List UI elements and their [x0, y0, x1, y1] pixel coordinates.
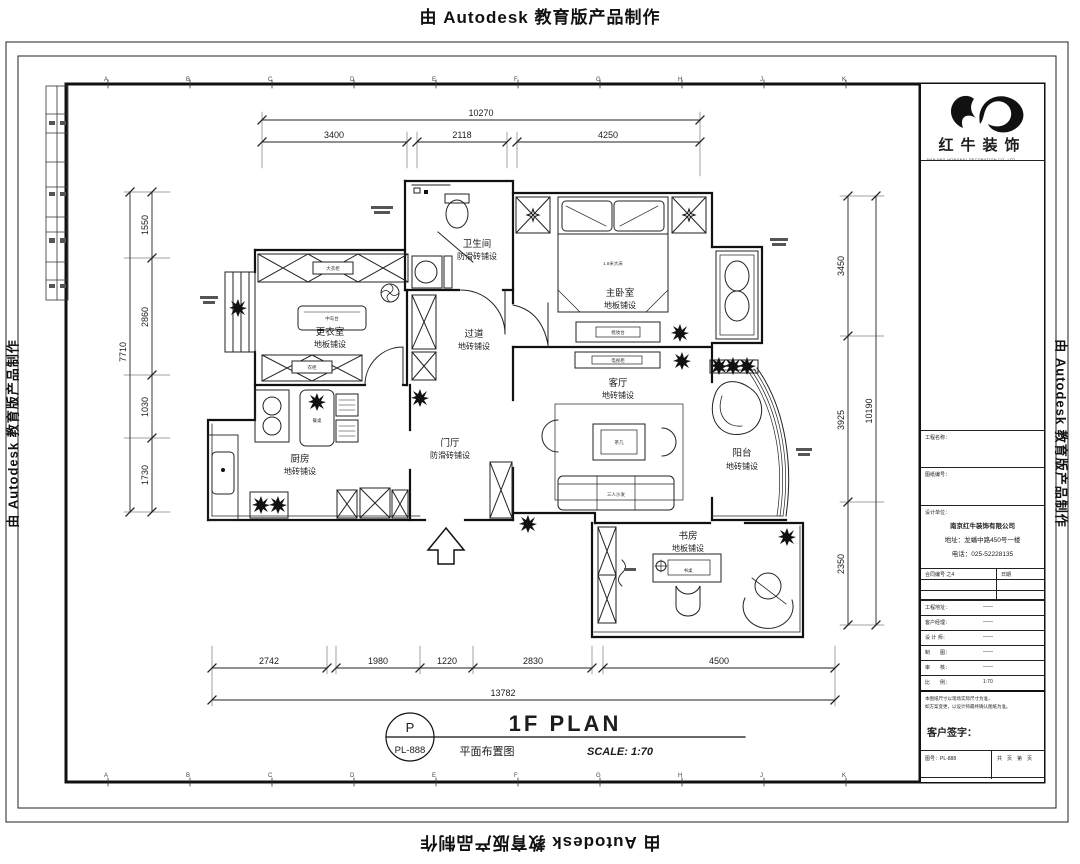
svg-text:3450: 3450	[836, 256, 846, 276]
company-name: 南京红牛装饰有限公司	[921, 520, 1044, 530]
room-labels: 更衣室 地板铺设 卫生间 防滑砖铺设 主卧室 地板铺设 过道 地砖铺设 客厅 地…	[284, 238, 758, 553]
floorplan-svg: AB CD EF GH JK AB CD EF GH JK	[0, 0, 1080, 864]
furniture	[208, 188, 793, 628]
sheet-borders	[6, 42, 1068, 822]
svg-text:大衣柜: 大衣柜	[326, 265, 340, 272]
svg-text:E: E	[432, 773, 436, 779]
title-cn: 平面布置图	[460, 745, 515, 758]
svg-text:中岛台: 中岛台	[325, 315, 339, 322]
svg-text:地板铺设: 地板铺设	[314, 339, 346, 349]
svg-text:D: D	[350, 773, 355, 779]
svg-text:地砖铺设: 地砖铺设	[284, 466, 316, 476]
svg-text:K: K	[842, 773, 846, 779]
room-label-dressing: 更衣室	[316, 326, 345, 338]
title-scale: SCALE: 1:70	[587, 746, 654, 758]
tb-date-label: 日期	[1001, 571, 1011, 578]
tb-section3-label: 设计单位：	[925, 509, 950, 516]
svg-text:1980: 1980	[368, 656, 388, 666]
tb-note-2: 如方案变更，以设计师最终确认图纸为准。	[925, 704, 1011, 710]
svg-text:J: J	[760, 77, 763, 83]
svg-text:B: B	[186, 77, 190, 83]
svg-text:4250: 4250	[598, 130, 618, 140]
tb-footer-right: 共 页 第 页	[997, 755, 1032, 762]
brand-name: 红牛装饰	[921, 134, 1044, 155]
svg-text:地砖铺设: 地砖铺设	[726, 461, 758, 471]
svg-text:三人沙发: 三人沙发	[607, 491, 625, 498]
svg-text:D: D	[350, 77, 355, 83]
drawing-title: P PL-888 1F PLAN 平面布置图 SCALE: 1:70	[386, 711, 745, 761]
svg-text:2118: 2118	[452, 130, 471, 140]
svg-text:1730: 1730	[140, 465, 150, 485]
svg-text:书桌: 书桌	[684, 567, 693, 574]
svg-text:衣柜: 衣柜	[308, 364, 317, 371]
room-label-balcony: 阳台	[732, 447, 751, 459]
svg-text:3925: 3925	[836, 410, 846, 430]
svg-text:G: G	[596, 773, 601, 779]
svg-text:7710: 7710	[118, 342, 128, 362]
room-label-entry: 门厅	[440, 437, 460, 449]
svg-text:C: C	[268, 77, 273, 83]
svg-text:A: A	[104, 77, 108, 83]
svg-text:B: B	[186, 773, 190, 779]
svg-text:电视柜: 电视柜	[611, 357, 625, 364]
tb-note-1: 本图纸尺寸以现场实际尺寸为准，	[925, 696, 993, 702]
svg-text:2860: 2860	[140, 307, 150, 327]
svg-text:地板铺设: 地板铺设	[672, 543, 704, 553]
title-bubble-top: P	[406, 720, 415, 735]
doors	[365, 290, 548, 385]
room-label-bath: 卫生间	[463, 238, 492, 250]
company-address: 地址：龙蟠中路450号一楼	[921, 534, 1044, 544]
svg-text:地砖铺设: 地砖铺设	[602, 390, 634, 400]
drawing-sheet: { "banner": { "text": "由 Autodesk 教育版产品制…	[0, 0, 1080, 864]
svg-text:C: C	[268, 773, 273, 779]
room-label-master: 主卧室	[606, 287, 635, 299]
svg-text:10270: 10270	[468, 108, 493, 118]
grid-letters-bottom: AB CD EF GH JK	[104, 773, 846, 779]
svg-text:F: F	[514, 773, 518, 779]
svg-text:2350: 2350	[836, 554, 846, 574]
svg-text:防滑砖铺设: 防滑砖铺设	[430, 450, 470, 460]
svg-text:地砖铺设: 地砖铺设	[458, 341, 490, 351]
svg-text:餐桌: 餐桌	[313, 417, 322, 424]
entrance-arrow-icon	[428, 528, 464, 564]
room-label-living: 客厅	[608, 377, 628, 389]
tb-footer-left: 图号：PL-888	[925, 755, 956, 762]
title-1f-plan: 1F PLAN	[509, 711, 622, 736]
svg-text:1220: 1220	[437, 656, 457, 666]
walls	[208, 181, 803, 637]
svg-text:地板铺设: 地板铺设	[604, 300, 636, 310]
svg-text:1550: 1550	[140, 215, 150, 235]
grid-letters-top: AB CD EF GH JK	[104, 77, 846, 83]
dimension-lines	[124, 112, 884, 706]
svg-text:2742: 2742	[259, 656, 279, 666]
svg-text:H: H	[678, 77, 682, 83]
svg-text:K: K	[842, 77, 846, 83]
company-phone: 电话：025-52228135	[921, 548, 1044, 558]
svg-text:13782: 13782	[490, 688, 515, 698]
svg-text:1030: 1030	[140, 397, 150, 417]
tb-contract-label: 合同编号 之4	[925, 571, 954, 578]
room-label-kitchen: 厨房	[290, 453, 309, 465]
tb-section2-label: 图纸编号：	[925, 471, 950, 478]
svg-text:防滑砖铺设: 防滑砖铺设	[457, 251, 497, 261]
svg-text:梳妆台: 梳妆台	[611, 329, 625, 336]
room-label-study: 书房	[678, 530, 697, 542]
svg-text:3400: 3400	[324, 130, 344, 140]
tb-section1-label: 工程名称：	[925, 434, 950, 441]
title-bubble-code: PL-888	[395, 745, 426, 756]
svg-text:F: F	[514, 77, 518, 83]
room-label-corridor: 过道	[464, 328, 484, 340]
svg-text:G: G	[596, 77, 601, 83]
svg-text:H: H	[678, 773, 682, 779]
svg-text:A: A	[104, 773, 108, 779]
bull-logo-icon	[933, 88, 1033, 136]
svg-text:2830: 2830	[523, 656, 543, 666]
svg-text:4500: 4500	[709, 656, 729, 666]
svg-text:茶几: 茶几	[615, 439, 624, 446]
svg-text:10190: 10190	[864, 398, 874, 423]
customer-sign-label: 客户签字：	[927, 724, 977, 739]
svg-text:1.8米大床: 1.8米大床	[603, 260, 623, 267]
title-block: 红牛装饰 NANJING HONGNIU DECORATION CO.,LTD …	[921, 84, 1044, 782]
svg-text:J: J	[760, 773, 763, 779]
svg-text:E: E	[432, 77, 436, 83]
